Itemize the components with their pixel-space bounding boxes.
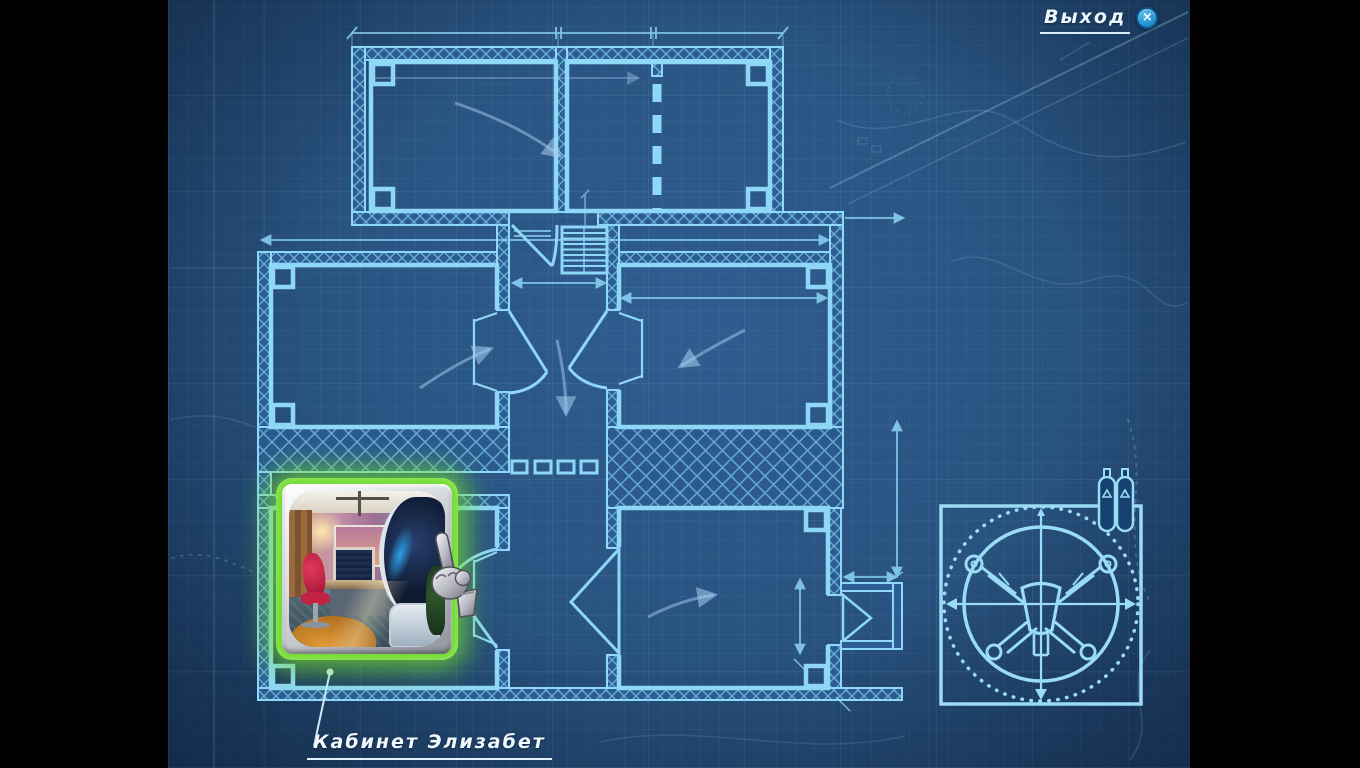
floor-plan bbox=[0, 0, 1360, 768]
scene-plant bbox=[426, 566, 445, 635]
gas-tanks-icon bbox=[1099, 469, 1133, 531]
close-button[interactable]: × bbox=[1136, 7, 1158, 29]
vehicle-schematic-icon bbox=[941, 506, 1141, 704]
office-scene-preview bbox=[289, 491, 445, 647]
game-window: Выход × bbox=[0, 0, 1360, 768]
location-thumbnail[interactable] bbox=[276, 478, 458, 660]
close-icon: × bbox=[1138, 8, 1156, 26]
exit-button[interactable]: Выход bbox=[1040, 4, 1130, 34]
letterbox-right bbox=[1190, 0, 1360, 768]
scene-pipe bbox=[358, 491, 361, 516]
scene-pipe bbox=[336, 497, 389, 500]
dashed-opening bbox=[512, 461, 597, 473]
room-label: Кабинет Элизабет bbox=[307, 731, 552, 760]
scene-light-streak bbox=[317, 581, 417, 647]
exit-control: Выход × bbox=[1040, 4, 1158, 34]
letterbox-left bbox=[0, 0, 168, 768]
vestibule bbox=[841, 583, 902, 649]
